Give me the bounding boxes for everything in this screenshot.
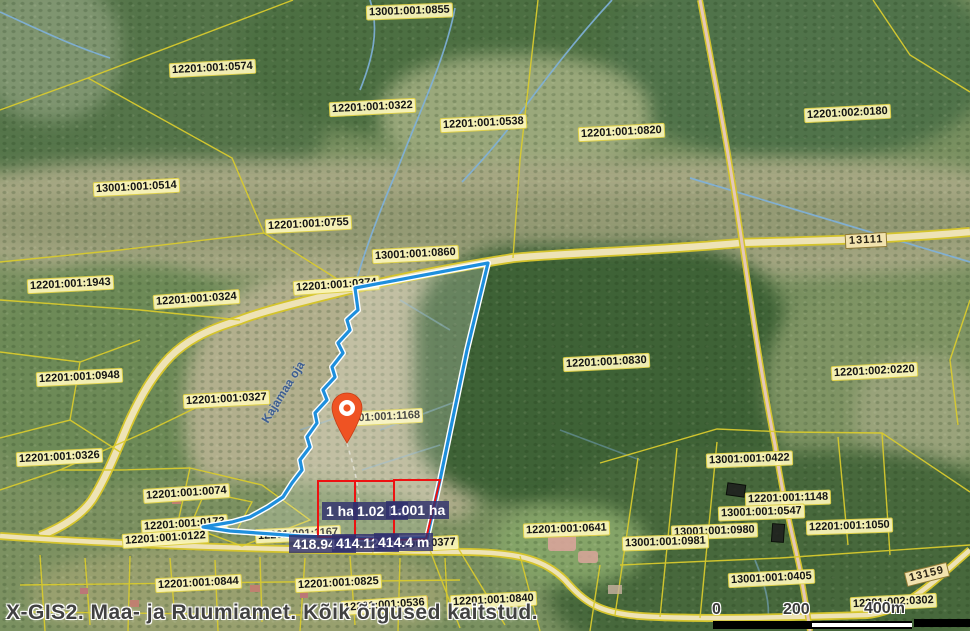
scalebar-tick-0: 0 <box>712 601 721 619</box>
attribution-text: X-GIS2. Maa- ja Ruumiamet. Kõik õigused … <box>6 601 538 625</box>
scalebar-segment-white <box>812 621 912 629</box>
scalebar-segment-black-1 <box>713 621 812 629</box>
scalebar-segment-black-2 <box>914 619 970 627</box>
scalebar-tick-400: 400m <box>864 600 905 618</box>
map-canvas[interactable]: 13001:001:085512201:001:057412201:001:03… <box>0 0 970 631</box>
scalebar-tick-200: 200 <box>783 601 810 619</box>
